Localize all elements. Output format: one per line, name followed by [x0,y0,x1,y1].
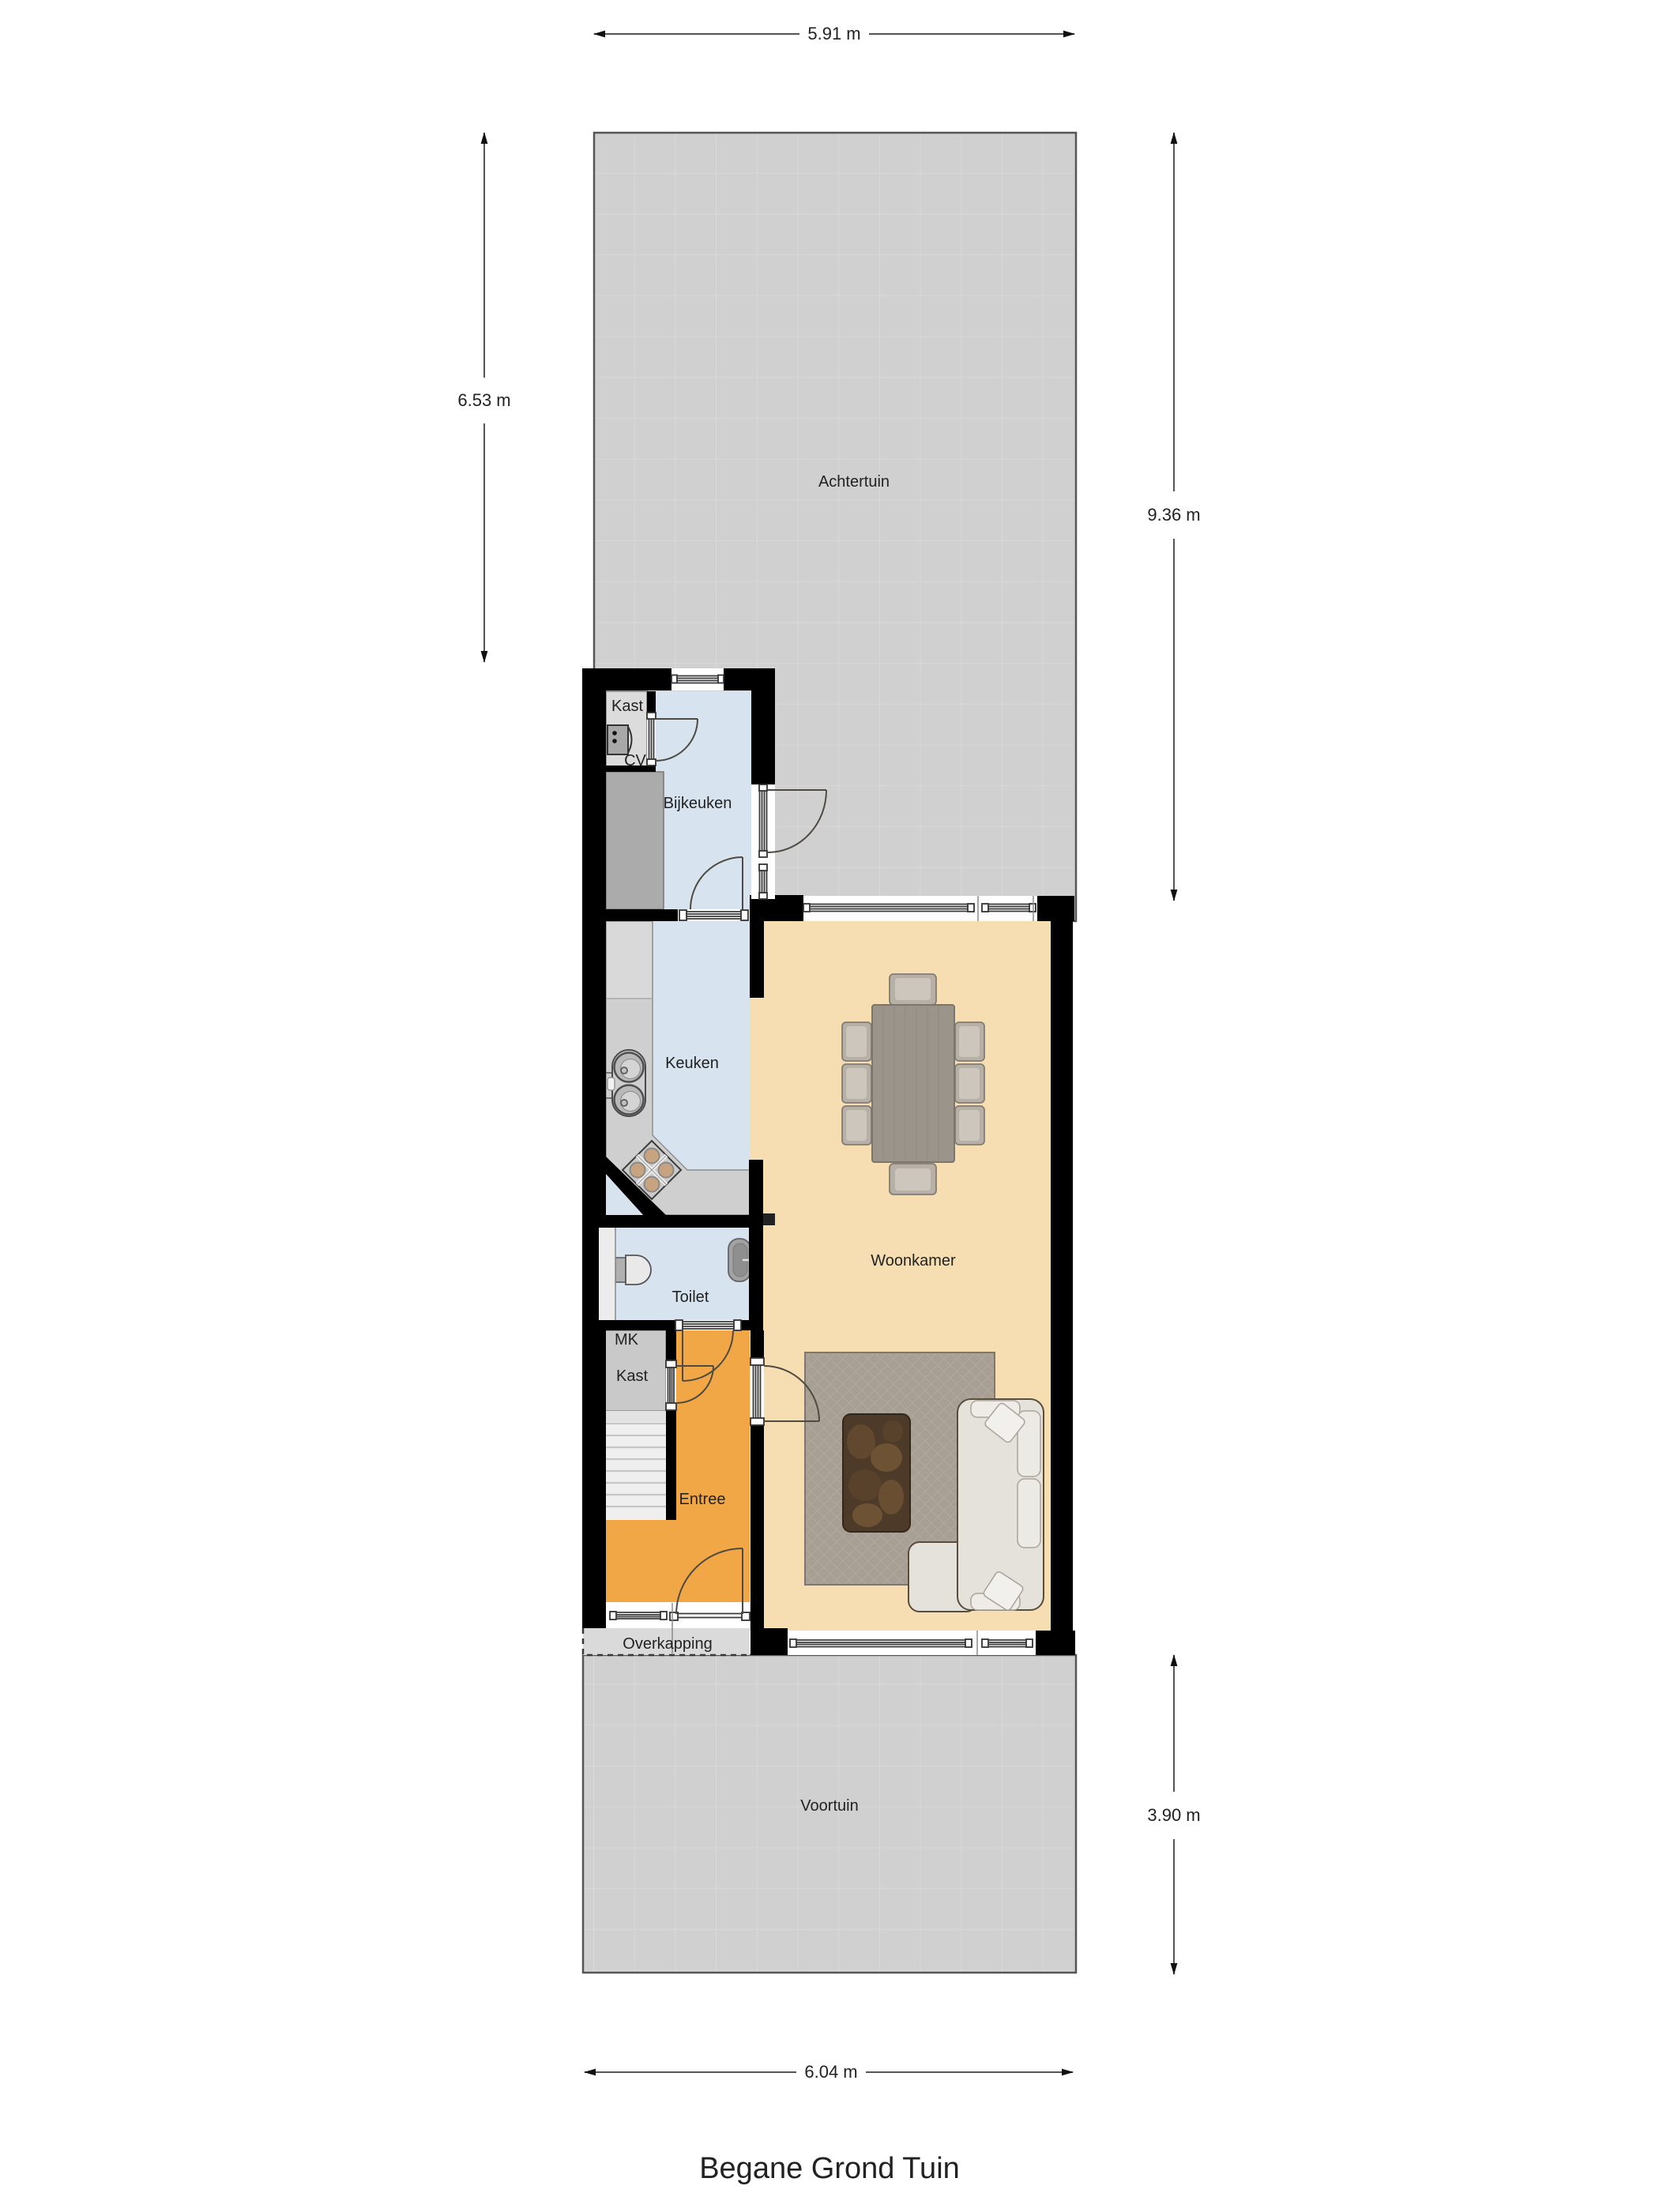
svg-text:Bijkeuken: Bijkeuken [664,795,732,812]
svg-text:9.36 m: 9.36 m [1147,505,1200,525]
svg-text:Achtertuin: Achtertuin [818,473,890,491]
svg-text:Kast: Kast [611,698,643,715]
svg-text:Overkapping: Overkapping [623,1635,712,1653]
svg-text:MK: MK [615,1331,639,1349]
svg-text:6.53 m: 6.53 m [457,390,510,410]
svg-text:6.04 m: 6.04 m [804,2062,857,2082]
svg-text:Toilet: Toilet [672,1288,709,1306]
svg-text:CV: CV [624,752,646,769]
svg-text:Keuken: Keuken [665,1055,719,1072]
svg-text:Kast: Kast [616,1367,648,1385]
svg-text:5.91 m: 5.91 m [807,24,860,43]
svg-text:Woonkamer: Woonkamer [871,1252,956,1270]
svg-text:Voortuin: Voortuin [800,1797,858,1815]
svg-text:Begane Grond Tuin: Begane Grond Tuin [699,2152,960,2185]
svg-text:Entree: Entree [679,1491,726,1508]
svg-text:3.90 m: 3.90 m [1147,1805,1200,1825]
